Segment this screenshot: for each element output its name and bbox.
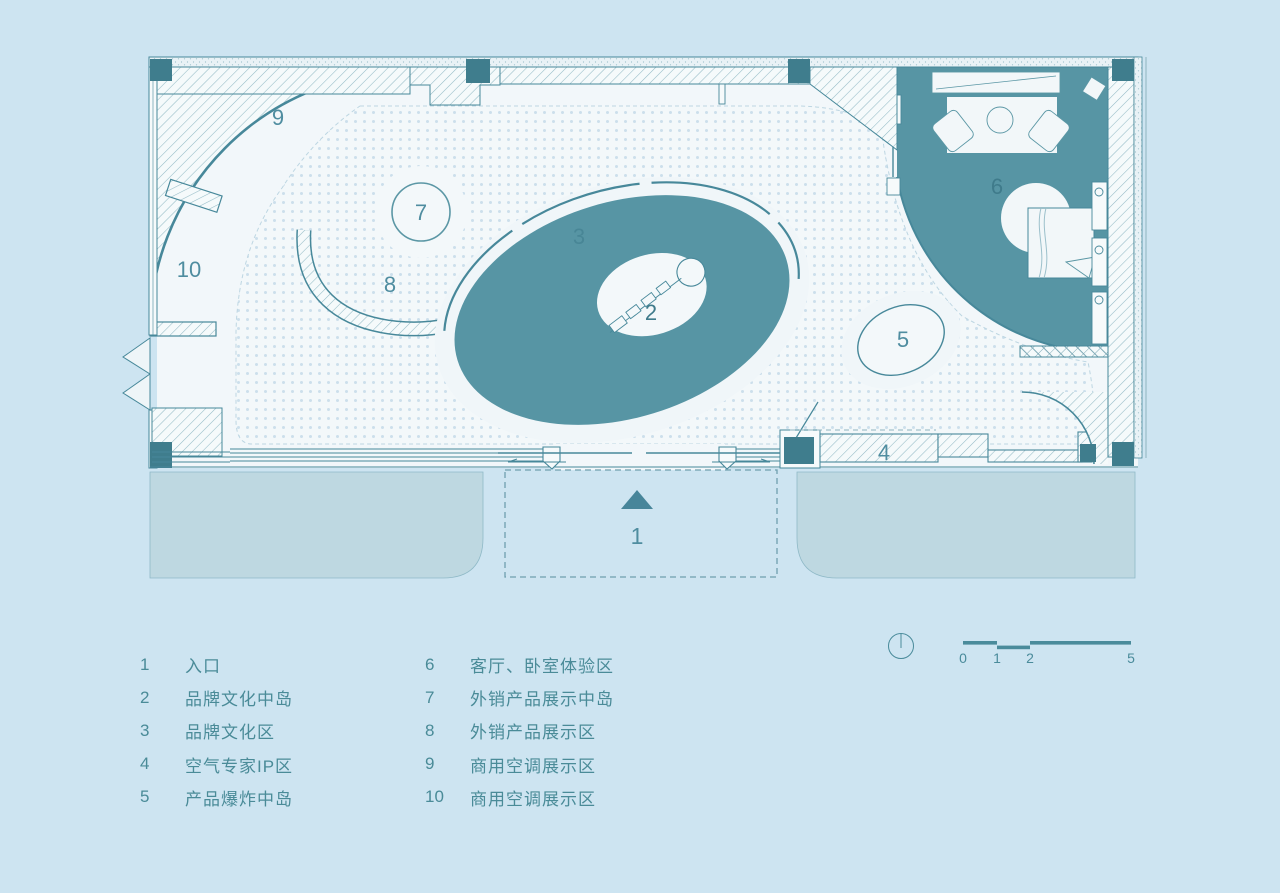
legend-label: 商用空调展示区 xyxy=(470,752,596,777)
legend-item-8: 8 外销产品展示区 xyxy=(425,714,745,747)
legend-column-2: 6 客厅、卧室体验区 7 外销产品展示中岛 8 外销产品展示区 9 商用空调展示… xyxy=(425,648,745,814)
legend-item-6: 6 客厅、卧室体验区 xyxy=(425,648,745,681)
legend-label: 入口 xyxy=(185,652,221,677)
area-label-1: 1 xyxy=(631,523,644,549)
paving-right xyxy=(797,472,1135,578)
scale-tick-2: 2 xyxy=(1026,650,1034,666)
legend-num: 4 xyxy=(140,754,185,774)
scale-tick-5: 5 xyxy=(1127,650,1135,666)
legend-num: 1 xyxy=(140,655,185,675)
area-label-4: 4 xyxy=(878,440,890,465)
legend-num: 9 xyxy=(425,754,470,774)
partition-wall xyxy=(1020,346,1108,357)
legend-item-5: 5 产品爆炸中岛 xyxy=(140,781,440,814)
legend-item-1: 1 入口 xyxy=(140,648,440,681)
legend-label: 商用空调展示区 xyxy=(470,785,596,810)
legend-column-1: 1 入口 2 品牌文化中岛 3 品牌文化区 4 空气专家IP区 5 产品爆炸中岛 xyxy=(140,648,440,814)
legend-item-10: 10 商用空调展示区 xyxy=(425,781,745,814)
legend-num: 2 xyxy=(140,688,185,708)
area-label-3: 3 xyxy=(573,224,585,249)
scale-tick-1: 1 xyxy=(993,650,1001,666)
legend-num: 10 xyxy=(425,787,470,807)
legend-num: 3 xyxy=(140,721,185,741)
legend-label: 客厅、卧室体验区 xyxy=(470,652,614,677)
area-label-6: 6 xyxy=(991,174,1003,199)
paving-left xyxy=(150,472,483,578)
area-label-9: 9 xyxy=(272,105,284,130)
side-exit-doors xyxy=(123,338,150,410)
area-label-7: 7 xyxy=(415,200,427,225)
legend-label: 空气专家IP区 xyxy=(185,752,293,777)
legend-num: 5 xyxy=(140,787,185,807)
area-label-2: 2 xyxy=(645,300,657,325)
legend-num: 6 xyxy=(425,655,470,675)
legend-num: 7 xyxy=(425,688,470,708)
floor-plan-page: 1 3 2 5 xyxy=(0,0,1280,888)
legend-item-9: 9 商用空调展示区 xyxy=(425,748,745,781)
legend-label: 品牌文化中岛 xyxy=(185,685,293,710)
scale-bar: 0 1 2 5 xyxy=(959,641,1135,666)
area-label-8: 8 xyxy=(384,272,396,297)
legend-label: 品牌文化区 xyxy=(185,718,275,743)
scale-tick-0: 0 xyxy=(959,650,967,666)
legend-item-2: 2 品牌文化中岛 xyxy=(140,681,440,714)
area-label-5: 5 xyxy=(897,327,909,352)
legend-item-3: 3 品牌文化区 xyxy=(140,714,440,747)
area-label-10: 10 xyxy=(177,257,201,282)
legend-item-7: 7 外销产品展示中岛 xyxy=(425,681,745,714)
north-indicator-icon xyxy=(889,634,914,659)
legend-item-4: 4 空气专家IP区 xyxy=(140,748,440,781)
legend-label: 外销产品展示区 xyxy=(470,718,596,743)
legend-label: 产品爆炸中岛 xyxy=(185,785,293,810)
legend-label: 外销产品展示中岛 xyxy=(470,685,614,710)
legend-num: 8 xyxy=(425,721,470,741)
